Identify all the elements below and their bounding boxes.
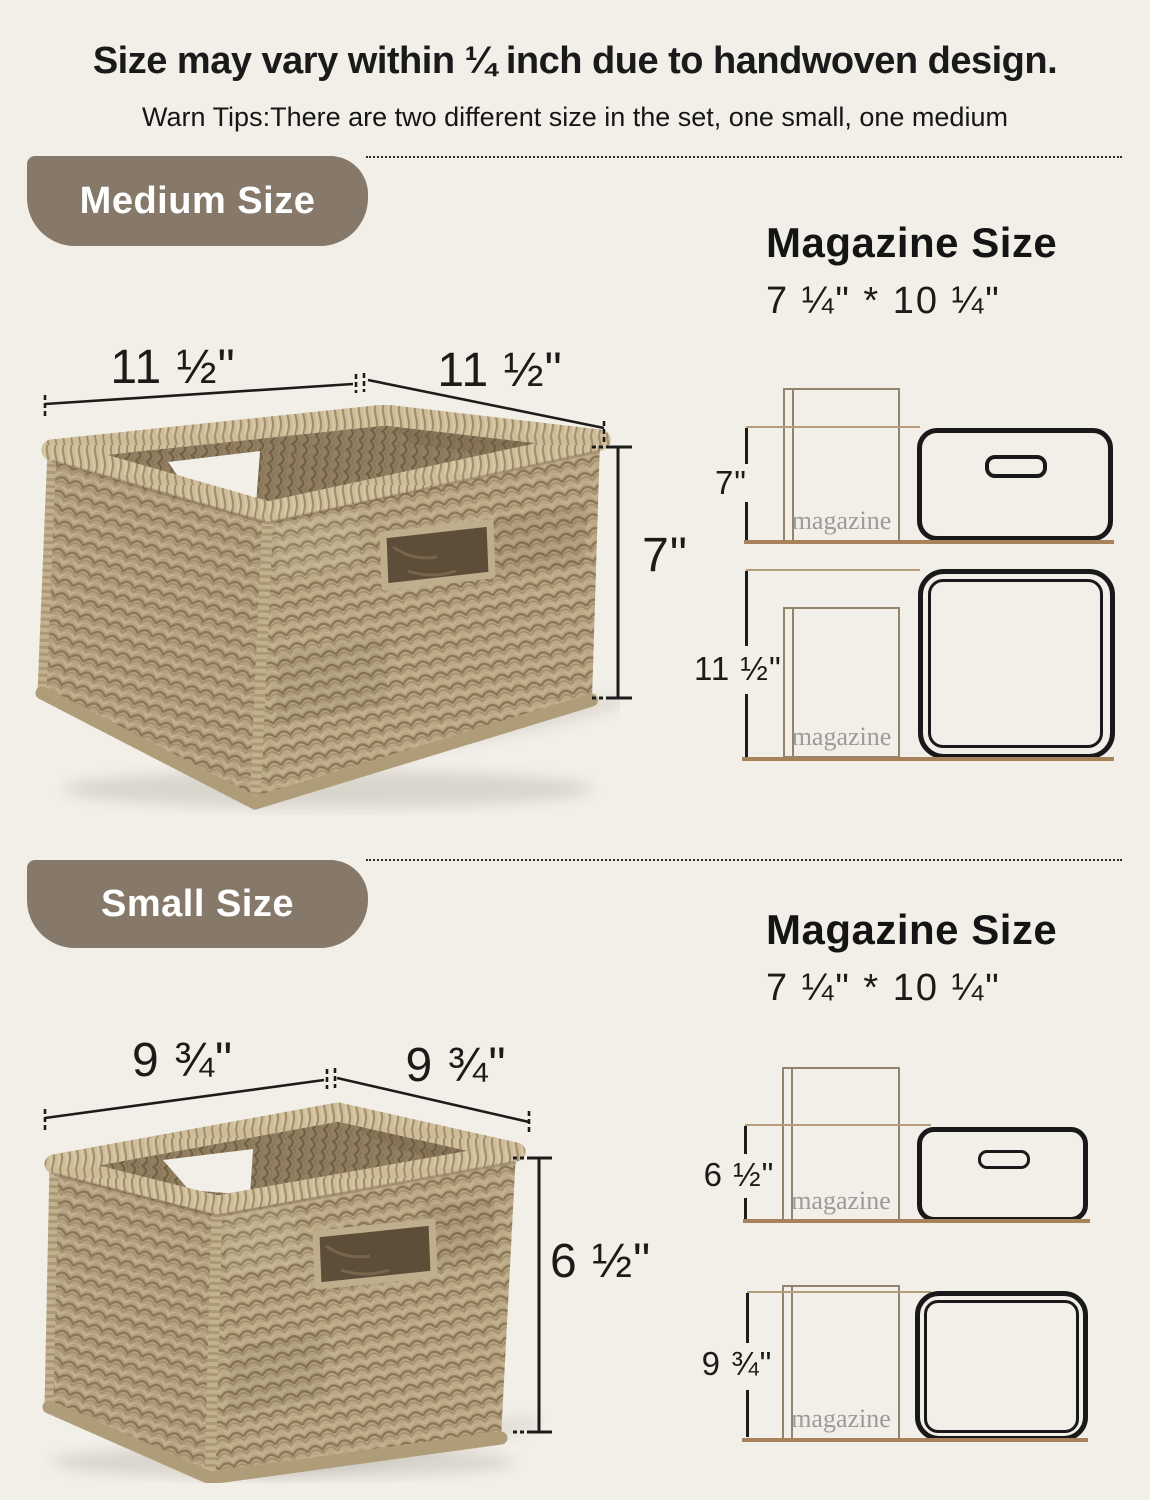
small-dim-right-label: 9 ¾": [382, 1038, 530, 1093]
small-side-dim-line: [744, 1198, 747, 1221]
medium-dim-left-label: 11 ½": [98, 340, 248, 395]
medium-side-dim-label: 7": [702, 464, 760, 502]
small-dim-left-label: 9 ¾": [105, 1033, 260, 1088]
magazine-label: magazine: [784, 1186, 898, 1216]
small-top-dim-line: [746, 1293, 749, 1343]
medium-dim-right-label: 11 ½": [425, 343, 575, 398]
medium-top-dim-line: [745, 571, 748, 646]
medium-panel-size: 7 ¼" * 10 ¼": [766, 280, 1001, 323]
small-side-dim-line: [744, 1126, 747, 1154]
small-top-guide-line: [747, 1291, 931, 1293]
small-top-magazine-outline: magazine: [782, 1285, 900, 1440]
basket-handle-outline: [978, 1150, 1030, 1169]
small-dim-junction-ticks: [327, 1068, 335, 1089]
small-height-label: 6 ½": [550, 1234, 680, 1289]
small-side-top-guide-line: [745, 1124, 931, 1126]
small-top-dim-label: 9 ¾": [696, 1345, 778, 1383]
medium-side-top-guide-line: [746, 426, 920, 428]
small-side-magazine-outline: magazine: [782, 1067, 900, 1222]
medium-panel-heading: Magazine Size: [766, 219, 1057, 267]
medium-top-guide-line: [746, 569, 920, 571]
small-top-ground-line: [742, 1438, 1088, 1442]
small-side-dim-label: 6 ½": [700, 1156, 778, 1194]
medium-top-dim-line: [745, 694, 748, 757]
medium-side-dim-line: [745, 428, 748, 464]
medium-side-ground-line: [744, 540, 1114, 544]
medium-dim-junction-ticks: [356, 373, 364, 393]
magazine-label: magazine: [785, 722, 898, 752]
magazine-label: magazine: [784, 1404, 898, 1434]
medium-side-magazine-outline: magazine: [783, 388, 900, 542]
medium-side-dim-line: [745, 502, 748, 541]
medium-top-magazine-outline: magazine: [783, 607, 900, 758]
small-basket-side-outline: [917, 1127, 1088, 1222]
medium-top-ground-line: [742, 757, 1114, 761]
small-basket-top-inner-outline: [924, 1300, 1079, 1433]
medium-height-label: 7": [630, 528, 700, 583]
small-panel-size: 7 ¼" * 10 ¼": [766, 967, 1001, 1010]
small-panel-heading: Magazine Size: [766, 906, 1057, 954]
medium-top-dim-label: 11 ½": [694, 650, 778, 688]
small-top-dim-line: [746, 1390, 749, 1437]
basket-handle-outline: [985, 455, 1047, 478]
small-side-ground-line: [743, 1219, 1090, 1223]
medium-basket-top-inner-outline: [928, 579, 1103, 748]
magazine-label: magazine: [785, 506, 898, 536]
medium-basket-side-outline: [917, 428, 1113, 541]
infographic-canvas: Size may vary within ¼ inch due to handw…: [0, 0, 1150, 1500]
